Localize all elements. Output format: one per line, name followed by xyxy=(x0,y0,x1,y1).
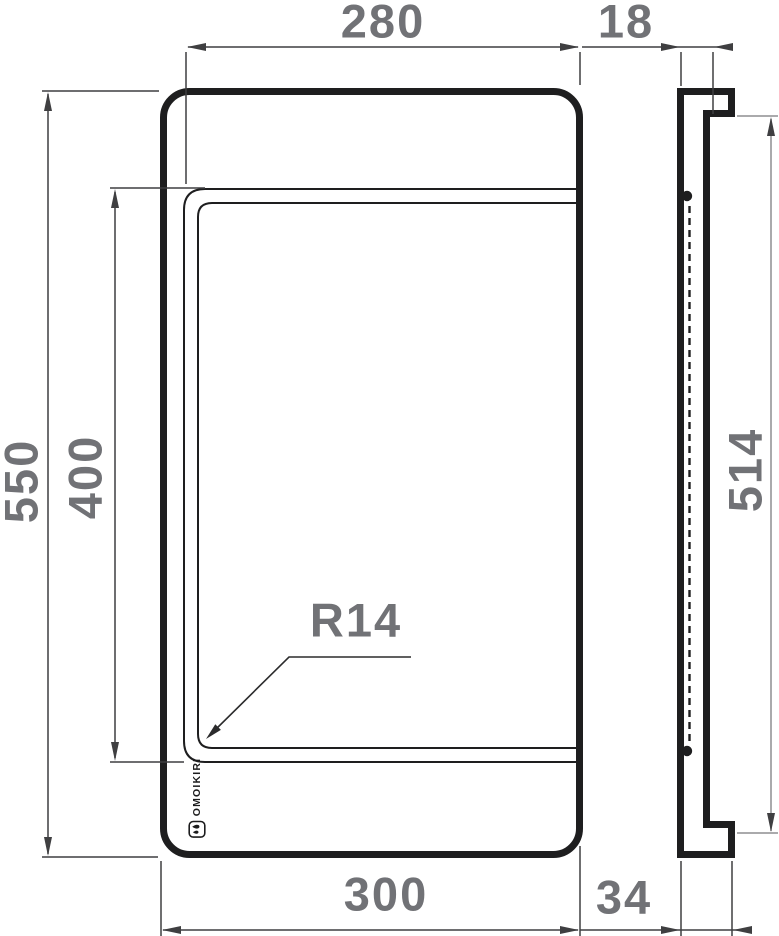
dim-label-profile-depth: 34 xyxy=(596,874,652,921)
tray-inner-line xyxy=(198,203,577,748)
dim-label-hook-span: 514 xyxy=(722,428,769,512)
front-view xyxy=(164,92,580,855)
dim-label-outer-width: 300 xyxy=(344,871,428,918)
grip-dot-top xyxy=(682,191,692,201)
dim-400-graphics xyxy=(110,188,205,762)
drawing-geometry xyxy=(0,0,779,936)
dim-label-inner-width: 280 xyxy=(341,0,425,45)
technical-drawing-cutting-board: 280 18 550 400 514 R14 300 34 OMOIKIRI xyxy=(0,0,779,936)
tray-outer-line xyxy=(184,189,577,762)
dim-label-outer-height: 550 xyxy=(0,439,45,523)
dim-label-lip-thickness: 18 xyxy=(598,0,654,45)
dim-280-graphics xyxy=(186,43,580,184)
dim-r14-leader xyxy=(206,657,411,739)
brand-logo: OMOIKIRI xyxy=(188,758,206,839)
dim-label-inner-height: 400 xyxy=(62,435,109,519)
brand-logo-text: OMOIKIRI xyxy=(191,758,203,817)
dim-18-graphics xyxy=(582,43,733,114)
board-outer-outline xyxy=(164,92,580,855)
brand-logo-drops-icon xyxy=(188,820,206,838)
grip-dot-bottom xyxy=(682,746,692,756)
dim-label-corner-radius: R14 xyxy=(310,597,402,644)
